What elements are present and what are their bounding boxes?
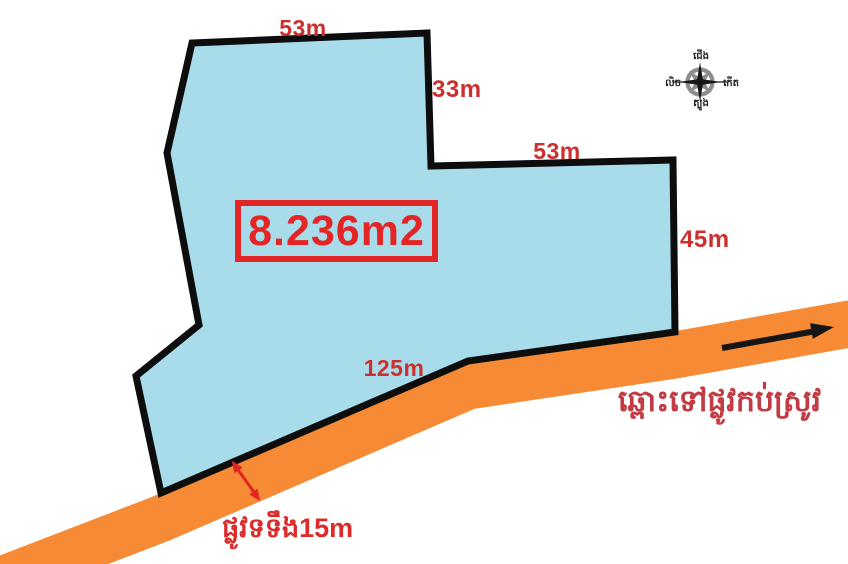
- dimension-label-right: 45m: [680, 226, 730, 254]
- road-width-label: ផ្លូវទទឹង15m: [222, 512, 353, 551]
- road-direction-label: ឆ្ពោះទៅផ្លូវកប់ស្រូវ: [618, 382, 821, 426]
- compass-label-west: លិច: [656, 76, 690, 91]
- area-label: 8.236m2: [248, 207, 425, 256]
- dimension-label-middle: 53m: [527, 138, 587, 165]
- compass-label-north: ជើង: [684, 49, 718, 64]
- dimension-label-bottom: 125m: [358, 355, 430, 382]
- compass-label-south: ត្បូង: [684, 96, 718, 111]
- dimension-label-upper-right: 33m: [432, 76, 482, 104]
- area-box: 8.236m2: [235, 200, 438, 262]
- dimension-label-top: 53m: [272, 15, 334, 42]
- compass-label-east: កើត: [714, 76, 748, 91]
- land-plot-diagram: 53m 33m 53m 45m 125m 8.236m2 ឆ្ពោះទៅផ្លូ…: [0, 0, 848, 564]
